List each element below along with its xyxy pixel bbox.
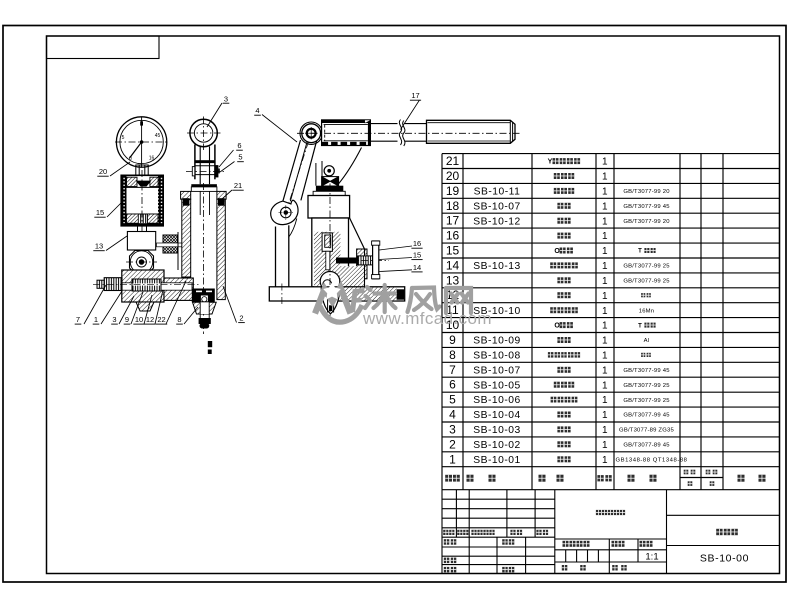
svg-text:15: 15: [96, 208, 104, 217]
svg-text:2: 2: [239, 314, 243, 323]
svg-text:GB1348-88 QT1348-88: GB1348-88 QT1348-88: [615, 458, 687, 464]
svg-text:SB-10-13: SB-10-13: [473, 261, 521, 272]
svg-text:GB/T3077-99 20: GB/T3077-99 20: [623, 219, 670, 225]
svg-text:1: 1: [449, 452, 456, 466]
svg-text:1: 1: [602, 246, 608, 257]
svg-text:GB/T3077-99 45: GB/T3077-99 45: [623, 204, 670, 210]
svg-text:8: 8: [177, 315, 181, 324]
svg-text:SB-10-02: SB-10-02: [473, 440, 521, 451]
svg-text:21: 21: [234, 181, 242, 190]
svg-text:9: 9: [125, 315, 129, 324]
svg-text:O: O: [554, 323, 560, 330]
svg-text:GB/T3077-89 ZG35: GB/T3077-89 ZG35: [619, 428, 674, 434]
svg-text:T: T: [638, 249, 642, 255]
svg-text:1: 1: [602, 291, 608, 302]
svg-text:SB-10-07: SB-10-07: [473, 365, 521, 376]
svg-text:SB-10-04: SB-10-04: [473, 410, 521, 421]
svg-text:12: 12: [146, 315, 154, 324]
svg-text:20: 20: [99, 167, 107, 176]
svg-text:8: 8: [449, 348, 456, 362]
svg-text:1: 1: [602, 351, 608, 362]
svg-text:Al: Al: [644, 338, 650, 344]
svg-text:1: 1: [602, 455, 608, 466]
svg-text:www.mfcad.com: www.mfcad.com: [362, 309, 492, 328]
svg-text:SB-10-06: SB-10-06: [473, 395, 521, 406]
svg-text:SB-10-09: SB-10-09: [473, 336, 521, 347]
svg-text:1: 1: [602, 336, 608, 347]
svg-text:1: 1: [602, 380, 608, 391]
svg-text:GB/T3077-99 25: GB/T3077-99 25: [623, 383, 670, 389]
svg-text:4: 4: [255, 106, 259, 115]
svg-text:7: 7: [449, 363, 456, 377]
svg-text:1: 1: [602, 216, 608, 227]
svg-text:1: 1: [602, 261, 608, 272]
svg-text:20: 20: [446, 169, 460, 183]
svg-text:45: 45: [155, 133, 161, 139]
svg-text:18: 18: [446, 199, 460, 213]
svg-text:6: 6: [449, 378, 456, 392]
svg-text:1: 1: [602, 201, 608, 212]
svg-text:SB-10-01: SB-10-01: [473, 455, 521, 466]
svg-text:GB/T3077-99 25: GB/T3077-99 25: [623, 264, 670, 270]
svg-text:1: 1: [602, 306, 608, 317]
svg-text:3: 3: [449, 422, 456, 436]
svg-text:1: 1: [602, 365, 608, 376]
svg-text:1: 1: [602, 172, 608, 183]
svg-text:21: 21: [446, 154, 460, 168]
svg-text:GB/T3077-99 25: GB/T3077-99 25: [623, 398, 670, 404]
svg-text:19: 19: [446, 184, 460, 198]
svg-text:4: 4: [449, 408, 456, 422]
svg-text:1: 1: [602, 231, 608, 242]
svg-text:GB/T3077-99 45: GB/T3077-99 45: [623, 368, 670, 374]
svg-text:GB/T3077-99 45: GB/T3077-99 45: [623, 413, 670, 419]
svg-text:16: 16: [413, 239, 421, 248]
svg-text:1: 1: [602, 321, 608, 332]
svg-text:SB-10-05: SB-10-05: [473, 380, 521, 391]
svg-text:17: 17: [411, 91, 419, 100]
svg-text:5: 5: [449, 393, 456, 407]
svg-text:3: 3: [224, 94, 228, 103]
svg-text:2: 2: [449, 437, 456, 451]
svg-text:1:1: 1:1: [645, 552, 658, 563]
svg-text:10: 10: [135, 315, 143, 324]
svg-text:13: 13: [446, 273, 460, 287]
svg-text:1: 1: [602, 276, 608, 287]
svg-text:6: 6: [237, 141, 241, 150]
svg-text:O: O: [554, 248, 560, 255]
svg-text:0: 0: [129, 156, 132, 162]
svg-text:3: 3: [112, 315, 116, 324]
svg-text:SB-10-03: SB-10-03: [473, 425, 521, 436]
svg-text:T: T: [638, 323, 642, 329]
svg-text:SB-10-08: SB-10-08: [473, 351, 521, 362]
svg-text:GB/T3077-99 25: GB/T3077-99 25: [623, 279, 670, 285]
svg-text:9: 9: [449, 333, 456, 347]
svg-text:5: 5: [238, 153, 242, 162]
svg-text:15: 15: [446, 244, 460, 258]
svg-text:14: 14: [413, 263, 421, 272]
svg-text:14: 14: [446, 258, 460, 272]
svg-text:1: 1: [602, 157, 608, 168]
svg-text:SB-10-11: SB-10-11: [474, 187, 521, 198]
svg-text:1: 1: [602, 410, 608, 421]
svg-text:1: 1: [602, 395, 608, 406]
svg-text:Y: Y: [548, 159, 553, 166]
svg-text:16: 16: [149, 156, 155, 162]
svg-text:1: 1: [602, 187, 608, 198]
svg-text:16Mn: 16Mn: [639, 308, 655, 314]
svg-text:SB-10-00: SB-10-00: [700, 553, 749, 565]
svg-text:1: 1: [602, 425, 608, 436]
svg-text:22: 22: [157, 315, 165, 324]
svg-text:5: 5: [122, 135, 125, 141]
svg-text:GB/T3077-89 45: GB/T3077-89 45: [623, 443, 670, 449]
svg-text:15: 15: [413, 251, 421, 260]
svg-text:7: 7: [76, 315, 80, 324]
svg-text:1: 1: [94, 315, 98, 324]
svg-text:GB/T3077-99 20: GB/T3077-99 20: [623, 189, 670, 195]
svg-text:SB-10-12: SB-10-12: [473, 216, 521, 227]
svg-text:16: 16: [446, 229, 460, 243]
svg-text:1: 1: [602, 440, 608, 451]
svg-text:SB-10-07: SB-10-07: [473, 201, 521, 212]
svg-text:13: 13: [95, 242, 103, 251]
svg-text:17: 17: [446, 214, 460, 228]
